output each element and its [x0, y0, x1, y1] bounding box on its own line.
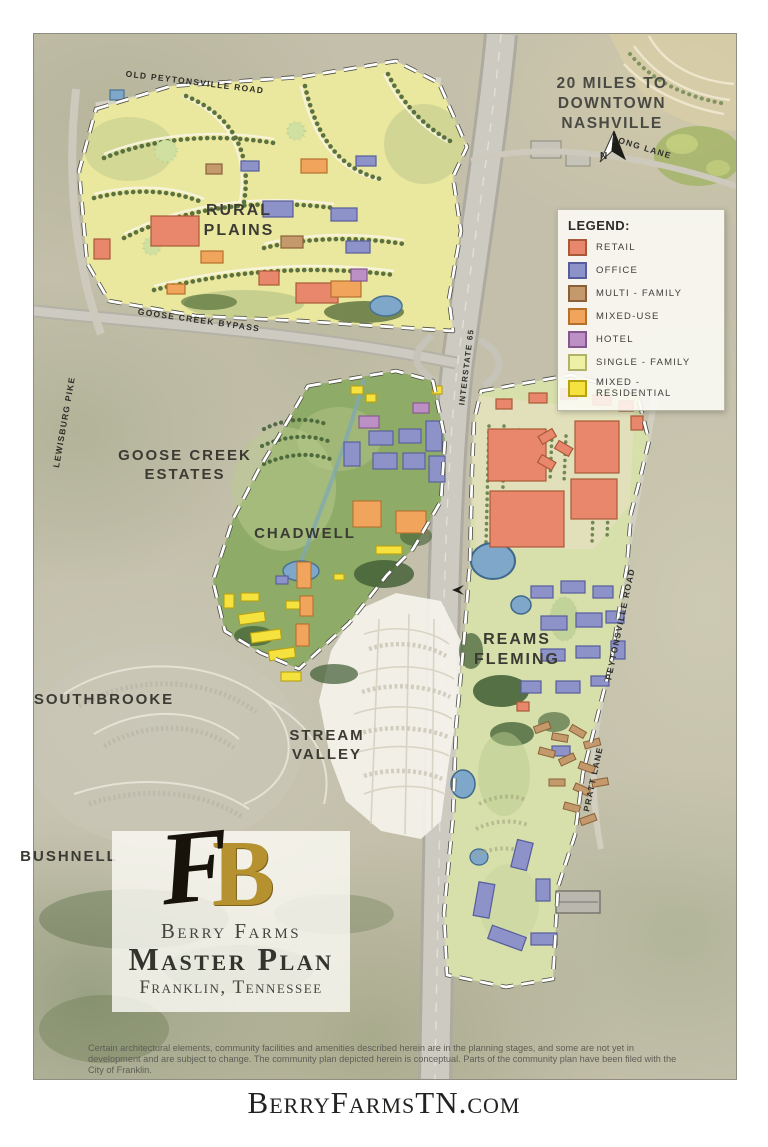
legend-title: LEGEND: — [568, 218, 714, 233]
office-swatch — [568, 262, 587, 279]
area-label-stream-valley: STREAM VALLEY — [277, 726, 377, 764]
plan-title: Master Plan — [112, 941, 350, 978]
legend-row-mixed-residential: MIXED - RESIDENTIAL — [568, 377, 714, 399]
hotel-swatch — [568, 331, 587, 348]
legend-row-mixed-use: MIXED-USE — [568, 308, 714, 325]
website-url: BerryFarmsTN.com — [0, 1085, 768, 1121]
area-label-chadwell: CHADWELL — [235, 524, 375, 543]
disclaimer-text: Certain architectural elements, communit… — [88, 1043, 680, 1076]
reams-fleming-parcel — [444, 375, 649, 987]
monogram-f: F — [155, 812, 235, 923]
berry-farms-monogram-icon: B F — [112, 831, 350, 931]
master-plan-poster: 20 MILES TO DOWNTOWN NASHVILLE N LEGEND:… — [0, 0, 768, 1147]
multi-family-swatch — [568, 285, 587, 302]
area-label-rural-plains: RURAL PLAINS — [184, 201, 294, 241]
legend-row-retail: RETAIL — [568, 239, 714, 256]
distance-note: 20 MILES TO DOWNTOWN NASHVILLE — [527, 74, 697, 134]
rural-plains-parcel — [79, 61, 467, 331]
north-label: N — [600, 151, 607, 162]
area-label-goose-creek-estates: GOOSE CREEK ESTATES — [100, 446, 270, 484]
area-label-southbrooke: SOUTHBROOKE — [24, 690, 184, 709]
distance-note-line: 20 MILES TO — [527, 74, 697, 94]
single-family-swatch — [568, 354, 587, 371]
distance-note-line: DOWNTOWN — [527, 94, 697, 114]
area-label-reams-fleming: REAMS FLEMING — [447, 630, 587, 670]
branding-box: B F Berry Farms Master Plan Franklin, Te… — [112, 831, 350, 1012]
legend-box: LEGEND: RETAIL OFFICE MULTI - FAMILY MIX… — [557, 209, 725, 411]
legend-row-hotel: HOTEL — [568, 331, 714, 348]
mixed-residential-swatch — [568, 380, 587, 397]
mixed-use-swatch — [568, 308, 587, 325]
plan-location: Franklin, Tennessee — [112, 977, 350, 999]
area-label-bushnell: BUSHNELL — [14, 847, 124, 866]
retail-swatch — [568, 239, 587, 256]
legend-row-multi-family: MULTI - FAMILY — [568, 285, 714, 302]
legend-row-office: OFFICE — [568, 262, 714, 279]
legend-row-single-family: SINGLE - FAMILY — [568, 354, 714, 371]
